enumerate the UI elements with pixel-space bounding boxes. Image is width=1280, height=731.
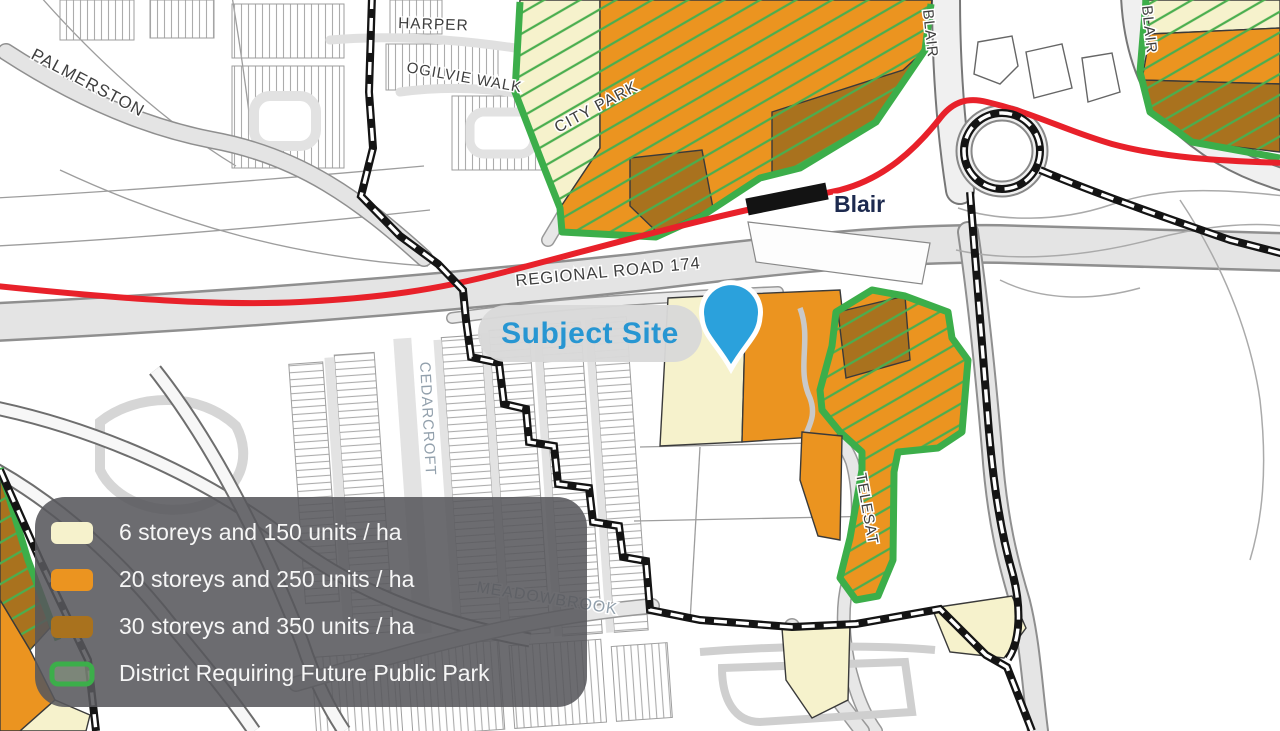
legend-item-30-storeys: 30 storeys and 350 units / ha bbox=[49, 613, 573, 640]
legend-swatch-low-rise bbox=[49, 520, 95, 546]
subject-site-callout: Subject Site bbox=[478, 305, 702, 362]
legend-label: 30 storeys and 350 units / ha bbox=[119, 613, 414, 640]
planning-map: PALMERSTON HARPER OGILVIE WALK CITY PARK… bbox=[0, 0, 1280, 731]
legend-item-6-storeys: 6 storeys and 150 units / ha bbox=[49, 519, 573, 546]
legend-swatch-mid-rise bbox=[49, 567, 95, 593]
legend-item-20-storeys: 20 storeys and 250 units / ha bbox=[49, 566, 573, 593]
legend-label: 6 storeys and 150 units / ha bbox=[119, 519, 402, 546]
legend-swatch-park-district bbox=[49, 661, 95, 687]
subject-site-label: Subject Site bbox=[501, 317, 679, 351]
legend-swatch-high-rise bbox=[49, 614, 95, 640]
street-label-harper: HARPER bbox=[398, 15, 469, 34]
blair-station-label: Blair bbox=[834, 191, 885, 217]
legend: 6 storeys and 150 units / ha 20 storeys … bbox=[35, 497, 587, 707]
legend-item-future-park: District Requiring Future Public Park bbox=[49, 660, 573, 687]
legend-label: District Requiring Future Public Park bbox=[119, 660, 490, 687]
legend-label: 20 storeys and 250 units / ha bbox=[119, 566, 414, 593]
crescent-road bbox=[254, 96, 316, 146]
